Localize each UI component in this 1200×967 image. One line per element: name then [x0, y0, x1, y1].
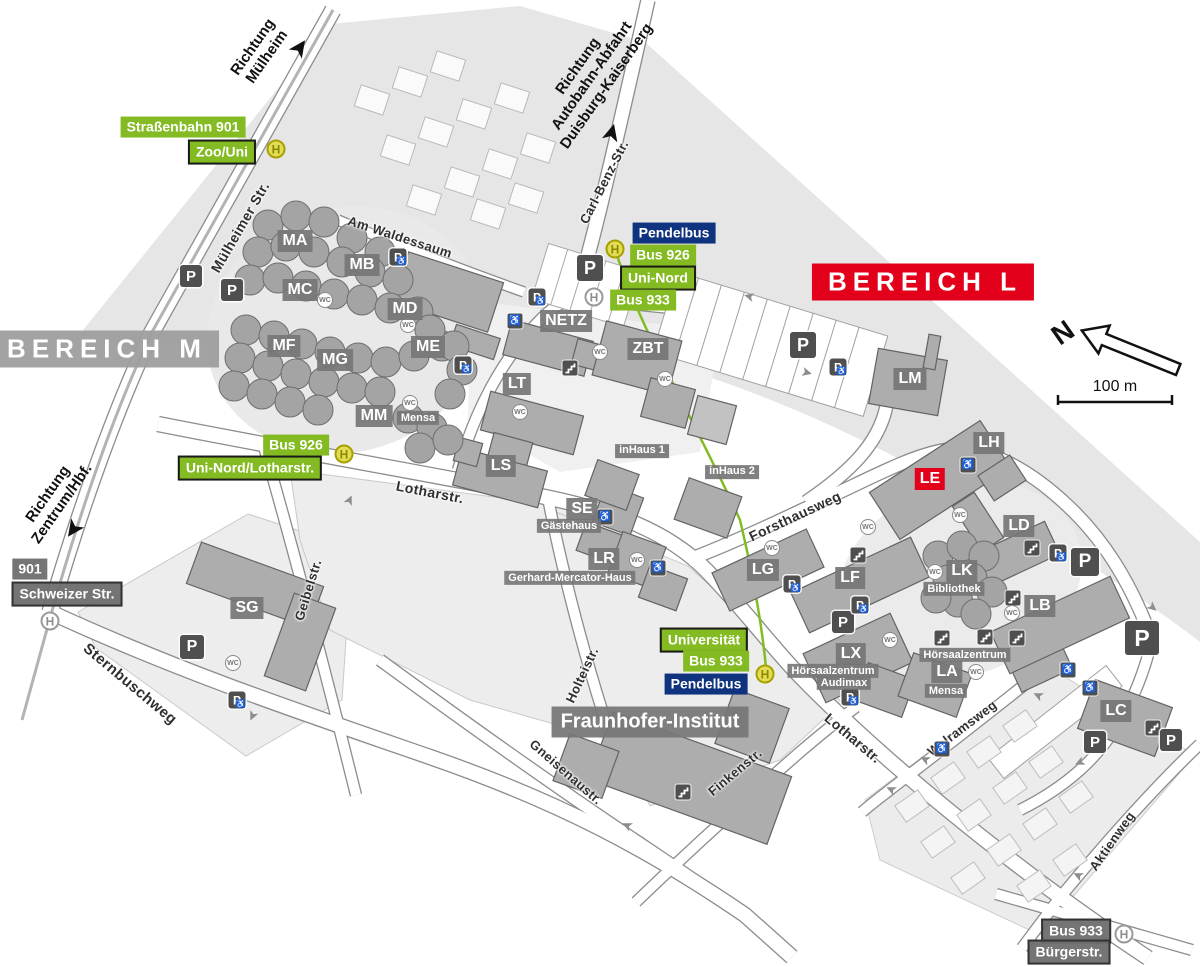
parking-disabled-icon[interactable]: P♿ [1050, 545, 1067, 562]
road-direction-arrow: ➤ [340, 492, 358, 509]
parking-icon[interactable]: P [1071, 548, 1099, 576]
stairs-icon [851, 548, 866, 563]
parking-icon[interactable]: P [790, 332, 816, 358]
wheelchair-glyph: ♿ [859, 606, 869, 614]
building-label-lb[interactable]: LB [1024, 595, 1055, 617]
road-direction-arrow: ➤ [883, 781, 900, 799]
wc-icon: WC [927, 564, 943, 580]
building-label-ld[interactable]: LD [1003, 515, 1034, 537]
street-label-holteistr: Holteistr. [563, 645, 602, 705]
wheelchair-access-icon: ♿ [935, 742, 950, 757]
area-label-bereich-m: BEREICH M [0, 331, 219, 368]
area-label-bereich-l: BEREICH L [812, 264, 1034, 301]
direction-arrow-icon: ➤ [284, 32, 316, 64]
street-label-geibelstr: Geibelstr. [292, 558, 325, 623]
wc-icon: WC [860, 519, 876, 535]
parking-icon[interactable]: P [180, 265, 202, 287]
building-label-lx[interactable]: LX [836, 643, 866, 665]
stairs-icon [1025, 541, 1040, 556]
wheelchair-glyph: ♿ [536, 298, 546, 306]
building-sublabel-g-stehaus: Gästehaus [537, 519, 601, 533]
transit-label-pendelbus[interactable]: Pendelbus [633, 223, 716, 244]
parking-disabled-icon[interactable]: P♿ [455, 357, 472, 374]
building-label-lm[interactable]: LM [893, 368, 926, 390]
wc-icon: WC [882, 632, 898, 648]
building-label-lf[interactable]: LF [835, 567, 865, 589]
building-sublabel-mensa: Mensa [397, 411, 439, 425]
transit-label-bus-933[interactable]: Bus 933 [610, 290, 676, 311]
building-label-lr[interactable]: LR [588, 548, 619, 570]
transit-stop-icon[interactable]: H [41, 612, 60, 631]
transit-label-bus-926[interactable]: Bus 926 [263, 435, 329, 456]
parking-disabled-icon[interactable]: P♿ [830, 359, 847, 376]
road-direction-arrow: ➤ [742, 289, 757, 306]
building-label-ls[interactable]: LS [486, 455, 516, 477]
building-label-inhaus-1[interactable]: inHaus 1 [615, 444, 669, 458]
wheelchair-access-icon: ♿ [651, 561, 666, 576]
wc-icon: WC [225, 655, 241, 671]
wheelchair-glyph: ♿ [791, 585, 801, 593]
street-label-finkenstr: Finkenstr. [705, 745, 765, 799]
road-direction-arrow: ➤ [800, 364, 815, 381]
parking-disabled-icon[interactable]: P♿ [529, 289, 546, 306]
building-label-mg[interactable]: MG [317, 349, 353, 371]
wc-icon: WC [657, 371, 673, 387]
building-label-le[interactable]: LE [915, 468, 945, 490]
road-direction-arrow: ➤ [1144, 598, 1162, 616]
street-label-lotharstr: Lotharstr. [822, 710, 885, 766]
road-direction-arrow: ➤ [917, 751, 934, 769]
wc-icon: WC [629, 552, 645, 568]
parking-disabled-icon[interactable]: P♿ [229, 692, 246, 709]
parking-icon[interactable]: P [180, 635, 204, 659]
building-label-zbt[interactable]: ZBT [627, 338, 668, 360]
building-label-sg[interactable]: SG [230, 597, 263, 619]
wc-icon: WC [402, 395, 418, 411]
building-label-lc[interactable]: LC [1100, 700, 1131, 722]
transit-label-pendelbus[interactable]: Pendelbus [665, 674, 748, 695]
building-label-mb[interactable]: MB [345, 254, 380, 276]
transit-stop-icon[interactable]: H [756, 665, 775, 684]
parking-disabled-icon[interactable]: P♿ [784, 576, 801, 593]
wc-icon: WC [1004, 605, 1020, 621]
parking-disabled-icon[interactable]: P♿ [852, 597, 869, 614]
wheelchair-access-icon: ♿ [961, 458, 976, 473]
road-direction-arrow: ➤ [244, 708, 262, 725]
transit-label-bus-933[interactable]: Bus 933 [683, 651, 749, 672]
wc-icon: WC [764, 540, 780, 556]
transit-label-stra-enbahn-901[interactable]: Straßenbahn 901 [121, 117, 246, 138]
wc-icon: WC [968, 664, 984, 680]
street-label-forsthausweg: Forsthausweg [746, 488, 843, 545]
building-label-mm[interactable]: MM [356, 405, 393, 427]
stairs-icon [1010, 631, 1025, 646]
wc-icon: WC [952, 507, 968, 523]
road-direction-arrow: ➤ [1030, 687, 1047, 705]
building-label-lk[interactable]: LK [946, 560, 977, 582]
building-label-lt[interactable]: LT [503, 373, 531, 395]
wheelchair-access-icon: ♿ [1083, 681, 1098, 696]
road-direction-arrow: ➤ [619, 817, 636, 835]
stairs-icon [563, 361, 578, 376]
direction-label-richtung-autobahn-abfahrt-duisburg-kaiserberg: RichtungAutobahn-AbfahrtDuisburg-Kaiserb… [528, 0, 656, 152]
wc-icon: WC [317, 292, 333, 308]
street-label-m-lheimer-str: Mülheimer Str. [208, 179, 273, 275]
building-label-fraunhofer-institut[interactable]: Fraunhofer-Institut [552, 707, 749, 738]
street-label-lotharstr: Lotharstr. [395, 478, 465, 507]
building-label-mc[interactable]: MC [283, 279, 318, 301]
transit-label-schweizer-str[interactable]: Schweizer Str. [12, 582, 123, 607]
parking-disabled-icon[interactable]: P♿ [390, 249, 407, 266]
wheelchair-glyph: ♿ [1057, 554, 1067, 562]
building-label-mf[interactable]: MF [267, 335, 300, 357]
wheelchair-glyph: ♿ [837, 368, 847, 376]
road-direction-arrow: ➤ [1072, 754, 1089, 772]
street-label-sternbuschweg: Sternbuschweg [80, 640, 180, 728]
campus-map: Mülheimer Str.Am WaldessaumCarl-Benz-Str… [0, 0, 1200, 967]
parking-icon[interactable]: P [1125, 621, 1159, 655]
stairs-icon [935, 631, 950, 646]
building-label-se[interactable]: SE [566, 498, 597, 520]
wheelchair-glyph: ♿ [236, 701, 246, 709]
parking-icon[interactable]: P [577, 255, 603, 281]
transit-stop-icon[interactable]: H [1115, 925, 1134, 944]
building-label-la[interactable]: LA [931, 661, 962, 683]
stairs-icon [676, 785, 691, 800]
parking-icon[interactable]: P [221, 279, 243, 301]
parking-icon[interactable]: P [1084, 731, 1106, 753]
building-label-me[interactable]: ME [411, 336, 445, 358]
transit-label-b-rgerstr[interactable]: Bürgerstr. [1028, 940, 1111, 965]
building-label-lg[interactable]: LG [747, 559, 779, 581]
transit-stop-icon[interactable]: H [585, 288, 604, 307]
building-label-md[interactable]: MD [388, 298, 423, 320]
wheelchair-glyph: ♿ [849, 698, 859, 706]
transit-label-universit-t[interactable]: Universität [660, 628, 748, 653]
direction-arrow-icon: ➤ [597, 120, 627, 147]
stairs-icon [1146, 721, 1161, 736]
wheelchair-access-icon: ♿ [508, 314, 523, 329]
street-label-carl-benz-str: Carl-Benz-Str. [577, 138, 632, 226]
wheelchair-glyph: ♿ [397, 258, 407, 266]
wheelchair-access-icon: ♿ [1061, 663, 1076, 678]
transit-stop-icon[interactable]: H [606, 240, 625, 259]
wc-icon: WC [592, 344, 608, 360]
road-direction-arrow: ➤ [1070, 867, 1087, 885]
transit-label-901[interactable]: 901 [12, 559, 47, 580]
transit-stop-icon[interactable]: H [335, 445, 354, 464]
building-label-netz[interactable]: NETZ [540, 310, 592, 332]
building-sublabel-bibliothek: Bibliothek [923, 582, 984, 596]
parking-disabled-icon[interactable]: P♿ [842, 689, 859, 706]
wheelchair-glyph: ♿ [462, 366, 472, 374]
building-sublabel-h-rsaalzentrum: Hörsaalzentrum [919, 648, 1010, 662]
street-label-gneisenaustr: Gneisenaustr. [527, 736, 606, 807]
transit-label-bus-926[interactable]: Bus 926 [630, 245, 696, 266]
building-label-ma[interactable]: MA [278, 230, 313, 252]
stairs-icon [978, 630, 993, 645]
direction-label-richtung-m-lheim: RichtungMülheim [227, 15, 293, 88]
building-sublabel-gerhard-mercator-haus: Gerhard-Mercator-Haus [504, 571, 635, 585]
building-label-inhaus-2[interactable]: inHaus 2 [705, 465, 759, 479]
wc-icon: WC [512, 404, 528, 420]
building-sublabel-mensa: Mensa [925, 684, 967, 698]
parking-icon[interactable]: P [1160, 729, 1182, 751]
parking-icon[interactable]: P [832, 611, 854, 633]
building-label-lh[interactable]: LH [973, 432, 1004, 454]
building-sublabel-audimax: Audimax [817, 676, 871, 690]
map-markers-layer: Mülheimer Str.Am WaldessaumCarl-Benz-Str… [0, 0, 1200, 967]
stairs-icon [1006, 591, 1021, 606]
transit-label-zoo-uni[interactable]: Zoo/Uni [188, 140, 256, 165]
transit-stop-icon[interactable]: H [267, 140, 286, 159]
transit-label-uni-nord[interactable]: Uni-Nord [620, 266, 696, 291]
street-label-aktienweg: Aktienweg [1086, 809, 1138, 874]
transit-label-uni-nord-lotharstr[interactable]: Uni-Nord/Lotharstr. [178, 456, 322, 481]
scale-label: 100 m [1093, 378, 1137, 396]
